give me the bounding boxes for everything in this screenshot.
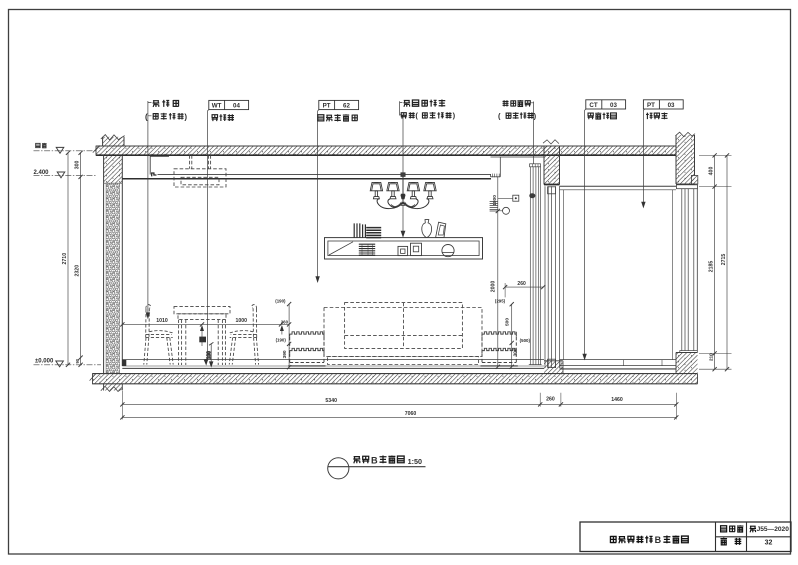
svg-text:(190): (190) bbox=[276, 337, 287, 342]
svg-text:7060: 7060 bbox=[405, 411, 417, 417]
svg-text:B: B bbox=[371, 456, 378, 466]
svg-text:90: 90 bbox=[75, 358, 80, 363]
svg-text:300: 300 bbox=[75, 160, 81, 169]
svg-text:(: ( bbox=[498, 111, 501, 120]
svg-text:(: ( bbox=[145, 112, 148, 121]
svg-text:): ) bbox=[534, 111, 537, 120]
svg-text:2.400: 2.400 bbox=[34, 170, 50, 176]
svg-text:PT: PT bbox=[323, 103, 331, 110]
svg-text:2185: 2185 bbox=[709, 261, 715, 273]
svg-text:WT: WT bbox=[212, 103, 222, 110]
svg-text:400: 400 bbox=[709, 167, 715, 176]
svg-text:210: 210 bbox=[709, 353, 714, 361]
svg-text:260: 260 bbox=[281, 319, 289, 324]
svg-text:300: 300 bbox=[513, 348, 519, 356]
svg-text:PT: PT bbox=[647, 102, 655, 109]
svg-text:J55—2020: J55—2020 bbox=[757, 526, 790, 533]
svg-text:(500): (500) bbox=[520, 338, 531, 343]
svg-text:1460: 1460 bbox=[611, 397, 623, 403]
svg-text:1:50: 1:50 bbox=[408, 457, 422, 466]
svg-text:5340: 5340 bbox=[325, 398, 337, 404]
svg-text:1010: 1010 bbox=[156, 318, 168, 324]
svg-text:260: 260 bbox=[517, 281, 526, 287]
svg-text:390: 390 bbox=[282, 350, 288, 358]
svg-text:100: 100 bbox=[207, 351, 213, 360]
svg-text:): ) bbox=[184, 112, 187, 121]
svg-text:2715: 2715 bbox=[721, 254, 727, 266]
svg-text:B: B bbox=[655, 535, 662, 545]
svg-text:±0.000: ±0.000 bbox=[35, 359, 54, 365]
svg-text:(190): (190) bbox=[275, 299, 286, 304]
svg-text:1800: 1800 bbox=[492, 195, 498, 206]
svg-text:CT: CT bbox=[589, 102, 597, 109]
svg-text:32: 32 bbox=[765, 539, 773, 546]
svg-text:1000: 1000 bbox=[236, 318, 248, 324]
svg-text:(295): (295) bbox=[495, 298, 506, 303]
svg-text:500: 500 bbox=[504, 318, 510, 326]
svg-text:62: 62 bbox=[343, 103, 350, 110]
svg-text:04: 04 bbox=[233, 103, 240, 110]
svg-text:): ) bbox=[453, 111, 456, 120]
svg-text:2000: 2000 bbox=[490, 281, 496, 293]
svg-text:2710: 2710 bbox=[62, 253, 68, 265]
svg-text:2320: 2320 bbox=[75, 265, 81, 277]
svg-text:260: 260 bbox=[546, 397, 555, 403]
svg-text:03: 03 bbox=[610, 102, 617, 109]
svg-text:(: ( bbox=[415, 111, 418, 120]
svg-text:03: 03 bbox=[668, 102, 675, 109]
